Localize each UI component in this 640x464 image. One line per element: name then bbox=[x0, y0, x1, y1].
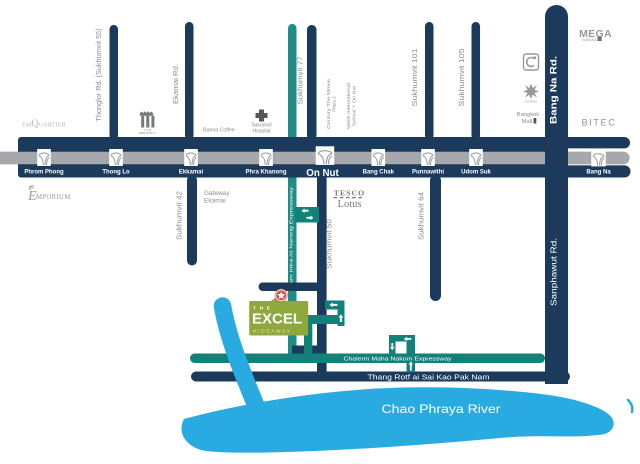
svg-text:Sukhumvit 77: Sukhumvit 77 bbox=[298, 56, 305, 104]
svg-text:Chao Phraya River: Chao Phraya River bbox=[382, 402, 501, 416]
svg-text:Ram Intra At Narong Expressway: Ram Intra At Narong Expressway bbox=[289, 186, 294, 289]
svg-text:EMDISTRICT: EMDISTRICT bbox=[139, 131, 156, 135]
svg-text:On Nut: On Nut bbox=[306, 168, 339, 179]
svg-text:Gateway: Gateway bbox=[204, 190, 230, 197]
svg-text:Thong Lo: Thong Lo bbox=[102, 169, 130, 175]
svg-text:Hospital: Hospital bbox=[252, 129, 270, 135]
svg-text:Chalerm Maha Nakorn Expressway: Chalerm Maha Nakorn Expressway bbox=[344, 357, 452, 363]
svg-text:Udom Suk: Udom Suk bbox=[461, 169, 491, 175]
svg-text:Sukhumvit 50: Sukhumvit 50 bbox=[327, 219, 334, 269]
svg-text:BITEC: BITEC bbox=[581, 118, 616, 128]
svg-text:Mall: Mall bbox=[522, 119, 533, 125]
svg-text:HIDEAWAY: HIDEAWAY bbox=[253, 328, 291, 334]
svg-text:Ekamai Rd.: Ekamai Rd. bbox=[173, 64, 180, 104]
svg-text:School + On Nut: School + On Nut bbox=[352, 85, 357, 126]
svg-text:TESCO: TESCO bbox=[334, 189, 365, 198]
svg-text:Sanphawut Rd.: Sanphawut Rd. bbox=[550, 238, 559, 306]
svg-text:Punnawithi: Punnawithi bbox=[412, 169, 444, 175]
svg-text:Sukhumvit 42: Sukhumvit 42 bbox=[177, 191, 184, 240]
svg-text:EXCEL: EXCEL bbox=[252, 312, 302, 328]
svg-text:Sukhumvit 101: Sukhumvit 101 bbox=[412, 48, 419, 106]
svg-text:Thang Rotf ai Sai Kao Pak Nam: Thang Rotf ai Sai Kao Pak Nam bbox=[368, 373, 490, 382]
svg-text:Ekamai: Ekamai bbox=[204, 198, 226, 205]
svg-text:Lotus: Lotus bbox=[338, 199, 362, 210]
svg-text:Phra Khanong: Phra Khanong bbox=[245, 169, 286, 175]
svg-text:Century The Movie: Century The Movie bbox=[326, 78, 331, 129]
svg-text:Plaza 2: Plaza 2 bbox=[332, 96, 337, 112]
svg-text:Thonglor Rd. (Sukhumvit 55): Thonglor Rd. (Sukhumvit 55) bbox=[96, 29, 103, 122]
svg-text:Ekkamai: Ekkamai bbox=[179, 169, 204, 175]
svg-text:Bang Na: Bang Na bbox=[586, 169, 611, 175]
svg-text:CENTRAL: CENTRAL bbox=[524, 100, 537, 104]
svg-text:Banna Coffee: Banna Coffee bbox=[203, 128, 235, 134]
svg-text:Sukhumvit 64: Sukhumvit 64 bbox=[419, 192, 426, 240]
svg-text:Bang Na Rd.: Bang Na Rd. bbox=[549, 56, 559, 124]
svg-text:Sukhumvit 105: Sukhumvit 105 bbox=[459, 48, 466, 106]
svg-text:MPORIUM: MPORIUM bbox=[36, 194, 71, 201]
svg-text:Phrom Phong: Phrom Phong bbox=[24, 169, 64, 175]
svg-text:BANGNA: BANGNA bbox=[582, 38, 597, 42]
svg-text:Bangkok: Bangkok bbox=[517, 112, 540, 118]
svg-text:Wells International: Wells International bbox=[346, 83, 351, 129]
svg-text:Bang Chak: Bang Chak bbox=[363, 169, 395, 175]
